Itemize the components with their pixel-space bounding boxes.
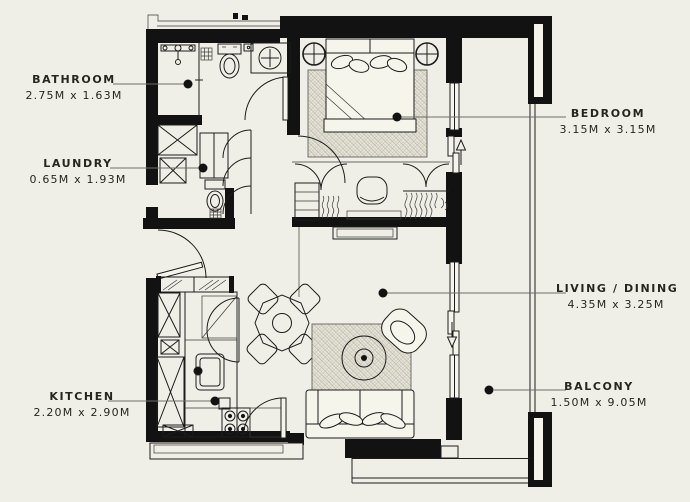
label-bedroom: BEDROOM 3.15M x 3.15M	[548, 106, 668, 138]
entry	[156, 227, 299, 297]
ceiling-light-icon	[303, 43, 325, 65]
wardrobes	[292, 162, 450, 220]
label-balcony: BALCONY 1.50M x 9.05M	[539, 379, 659, 411]
living-balcony-door	[448, 311, 459, 355]
toilet-icon	[218, 44, 241, 78]
bathroom-door	[245, 77, 288, 120]
bathroom-sink-icon	[251, 43, 290, 73]
bedroom-window	[450, 83, 459, 130]
label-bathroom: BATHROOM 2.75M x 1.63M	[14, 72, 134, 104]
label-kitchen: KITCHEN 2.20M x 2.90M	[22, 389, 142, 421]
sofa-icon	[306, 390, 414, 438]
toilet-paper-icon	[244, 44, 253, 51]
label-laundry: LAUNDRY 0.65M x 1.93M	[18, 156, 138, 188]
room-dims: 4.35M x 3.25M	[556, 297, 676, 313]
room-name: LIVING / DINING	[556, 281, 676, 297]
shower-partition	[195, 43, 203, 118]
kitchen-tall-cupboard-doors	[207, 298, 239, 362]
bedroom-balcony-door	[448, 136, 459, 173]
dining-table-icon	[255, 295, 309, 351]
entry-closet	[156, 276, 234, 293]
tv-console	[333, 227, 397, 239]
kitchen-sink-icon	[194, 354, 224, 390]
floorplan-page: BATHROOM 2.75M x 1.63M LAUNDRY 0.65M x 1…	[0, 0, 690, 502]
room-dims: 0.65M x 1.93M	[18, 172, 138, 188]
kitchen-switch-box	[219, 398, 230, 409]
room-name: BATHROOM	[14, 72, 134, 88]
living-window-2	[450, 355, 459, 398]
room-name: LAUNDRY	[18, 156, 138, 172]
laundry-fixture-icon	[205, 180, 225, 211]
room-dims: 2.75M x 1.63M	[14, 88, 134, 104]
balcony-step	[441, 446, 458, 458]
floor-drain-icon	[201, 48, 212, 60]
slab-edge-lines	[148, 13, 280, 29]
label-living-dining: LIVING / DINING 4.35M x 3.25M	[556, 281, 676, 313]
bathroom	[161, 43, 290, 120]
shower-icon	[161, 45, 195, 65]
living-window	[450, 262, 459, 312]
room-name: BEDROOM	[548, 106, 668, 122]
room-dims: 1.50M x 9.05M	[539, 395, 659, 411]
dining-set	[245, 282, 322, 366]
laundry-marker-dot	[199, 164, 208, 173]
living-marker-dot	[379, 289, 388, 298]
kitchen-marker-dot	[211, 397, 220, 406]
room-name: KITCHEN	[22, 389, 142, 405]
bedroom-marker-dot	[393, 113, 402, 122]
room-dims: 2.20M x 2.90M	[22, 405, 142, 421]
balcony-marker-dot	[485, 386, 494, 395]
bathroom-marker-dot	[184, 80, 193, 89]
living-room	[306, 227, 432, 438]
bed-icon	[324, 39, 416, 132]
ceiling-light-icon	[416, 43, 438, 65]
kitchen	[185, 292, 286, 438]
room-dims: 3.15M x 3.15M	[548, 122, 668, 138]
desk-chair-icon	[357, 177, 387, 204]
service-shafts	[157, 125, 197, 437]
bedroom	[292, 39, 450, 220]
entry-door	[157, 230, 206, 279]
room-name: BALCONY	[539, 379, 659, 395]
kitchen-ledge	[150, 443, 303, 459]
